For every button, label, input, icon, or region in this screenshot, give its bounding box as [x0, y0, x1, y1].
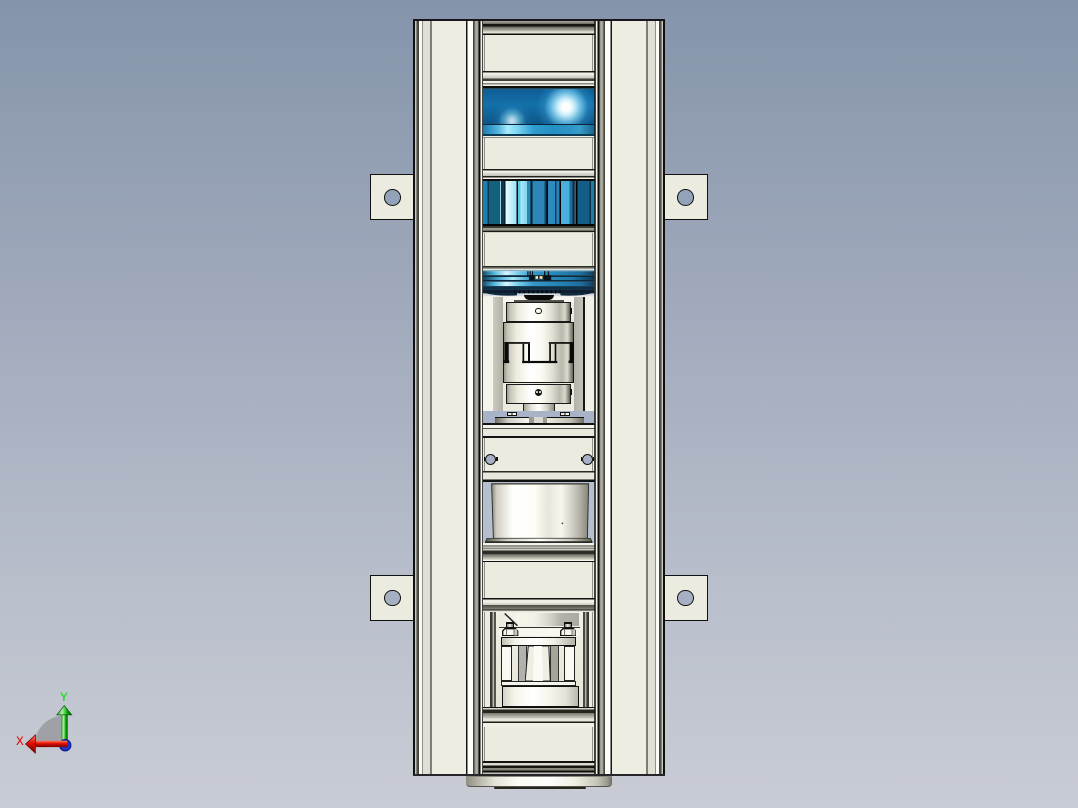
svg-text:Y: Y [60, 690, 68, 705]
svg-text:X: X [16, 734, 24, 749]
